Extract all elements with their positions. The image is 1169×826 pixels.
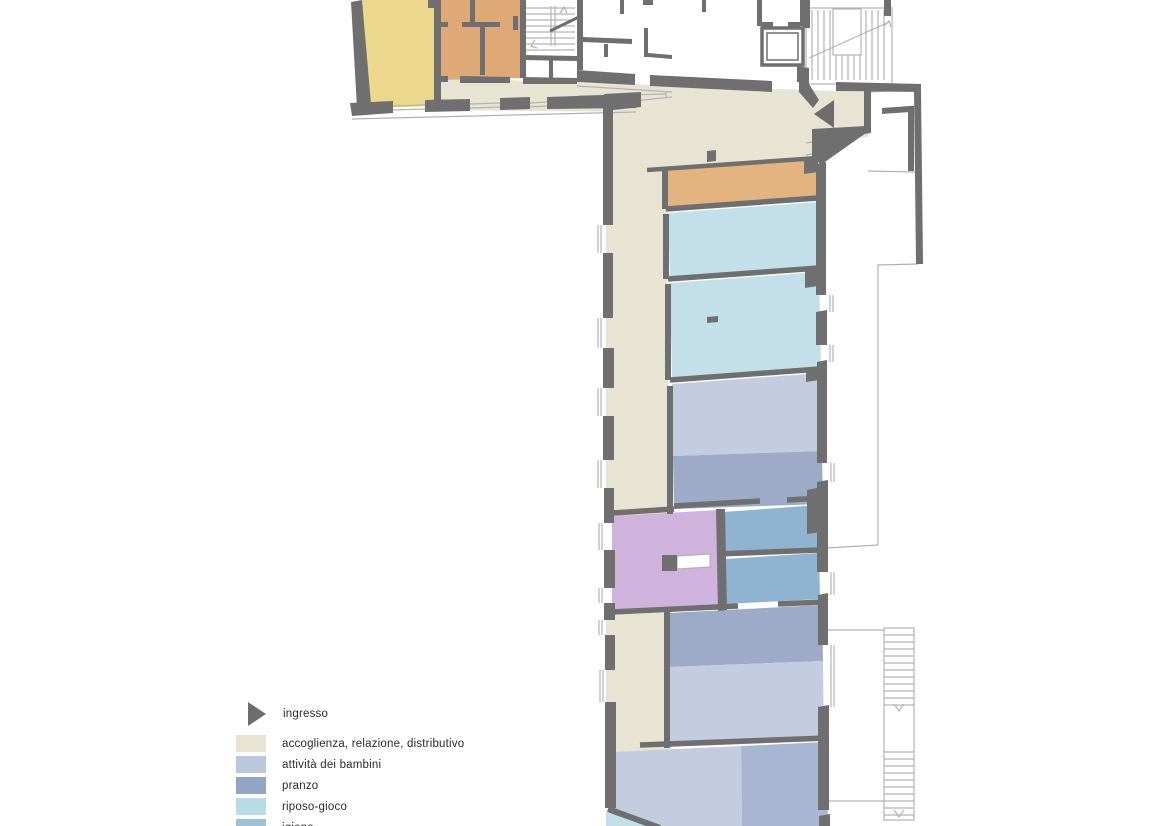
stair-external-arrows <box>894 704 904 817</box>
terrace-lower-lines <box>827 630 884 801</box>
terrace-outline <box>827 264 918 548</box>
room-attivita-1 <box>672 373 822 456</box>
room-riposo-1 <box>668 202 819 277</box>
floor-plan-drawing <box>0 0 1169 826</box>
floor-plan-page: ingresso accoglienza, relazione, distrib… <box>0 0 1169 826</box>
sills-left-wall <box>598 225 603 702</box>
room-yellow <box>362 0 437 108</box>
room-top-right-white <box>870 92 914 171</box>
elevator <box>762 28 803 65</box>
room-attivita-2 <box>669 661 824 747</box>
room-bottom-left <box>612 746 742 826</box>
viola-door-slot <box>677 554 710 569</box>
stair-topright-landing <box>833 9 861 55</box>
stair-external-outline <box>884 628 914 820</box>
room-igiene-2 <box>725 553 820 604</box>
room-bottom-right <box>741 742 828 826</box>
room-riposo-2 <box>670 272 821 378</box>
room-pranzo-2 <box>668 605 823 667</box>
stair-external-treads <box>884 635 914 815</box>
room-igiene-1 <box>724 505 819 553</box>
